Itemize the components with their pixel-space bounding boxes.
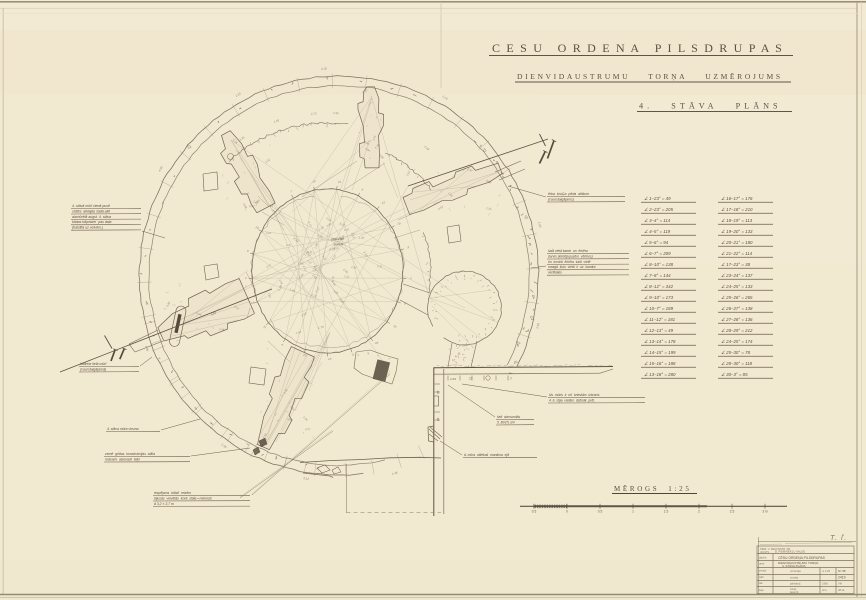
svg-text:∠ 25–30° = 78: ∠ 25–30° = 78: [721, 350, 751, 355]
svg-text:∠ 28–29° = 212: ∠ 28–29° = 212: [721, 328, 753, 333]
svg-text:4. stāva mūra virsma: 4. stāva mūra virsma: [107, 427, 139, 431]
svg-text:redzami atseviskĭ leļķi: redzami atseviskĭ leļķi: [105, 457, 140, 461]
svg-text:∠ 3–4° = 114: ∠ 3–4° = 114: [644, 218, 671, 223]
svg-text:∠ 24–25° = 174: ∠ 24–25° = 174: [721, 339, 753, 344]
svg-text:zemē grīdas konstrukcijas s: zemē grīdas konstrukcijas stāĺa: [104, 451, 155, 456]
svg-text:∠ 26–27° = 138: ∠ 26–27° = 138: [721, 306, 753, 311]
svg-text:raset̆.: raset̆.: [759, 562, 765, 565]
svg-text:2.31: 2.31: [376, 264, 383, 269]
svg-text:∠ 27–28° = 136: ∠ 27–28° = 136: [721, 317, 753, 322]
svg-text:3 m: 3 m: [762, 510, 768, 514]
svg-text:22: 22: [374, 341, 379, 345]
svg-text:2.72: 2.72: [310, 111, 317, 116]
svg-text:m 1:25: m 1:25: [822, 569, 830, 573]
svg-text:38 sk.: 38 sk.: [838, 588, 845, 592]
svg-text:∠ 28–30° = 118: ∠ 28–30° = 118: [721, 361, 753, 366]
svg-text:∠ 12–13° = 49: ∠ 12–13° = 49: [644, 328, 674, 333]
svg-text:T. ľ.: T. ľ.: [830, 533, 847, 542]
svg-text:3.55: 3.55: [344, 227, 350, 232]
svg-text:∠ 4–5° = 119: ∠ 4–5° = 119: [644, 229, 671, 234]
svg-text:∠ 19–20° = 133: ∠ 19–20° = 133: [721, 229, 753, 234]
svg-text:∠ 18–19° = 113: ∠ 18–19° = 113: [721, 218, 753, 223]
svg-text:MĒROGS 1:25: MĒROGS 1:25: [614, 485, 692, 493]
svg-text:iespējams bālstī reizēm: iespējams bālstī reizēm: [154, 491, 191, 495]
svg-text:∠ 21–22° = 114: ∠ 21–22° = 114: [721, 251, 753, 256]
svg-text:3.18: 3.18: [321, 66, 327, 71]
svg-text:.88: .88: [436, 417, 440, 421]
svg-text:VALSTS: VALSTS: [760, 551, 769, 554]
svg-text:torn.: torn.: [822, 588, 827, 592]
svg-text:lapa Nr.: lapa Nr.: [790, 590, 799, 594]
svg-text:pārbāud.: pārbāud.: [790, 581, 801, 585]
svg-text:∠ 17–18° = 210: ∠ 17–18° = 210: [721, 207, 753, 212]
svg-text:C E S U O R D E N A P I L: C E S U O R D E N A P I L S D R U P A S: [492, 41, 783, 55]
svg-text:šis mūris ir nō briestăm: šis mūris ir nō briestăm izbrucis: [549, 393, 600, 397]
svg-text:(caurstaigājams): (caurstaigājams): [548, 197, 574, 201]
svg-text:∠ 30–3° = 85: ∠ 30–3° = 85: [721, 372, 748, 377]
svg-text:ūn kontră ērkēra šaĺā vie: ūn kontră ērkēra šaĺā vietē: [548, 259, 591, 264]
svg-text:(balstīta uz velvēm.): (balstīta uz velvēm.): [72, 226, 103, 230]
svg-text:1.86: 1.86: [298, 261, 304, 266]
svg-text:5. BV(?) /24: 5. BV(?) /24: [497, 420, 515, 424]
svg-text:0.5: 0.5: [532, 510, 537, 514]
svg-text:1.04: 1.04: [450, 377, 456, 381]
svg-text:∠ 13–14° = 178: ∠ 13–14° = 178: [644, 339, 676, 344]
svg-text:DIENVIDAUSTRUMU TORŅA UZ: DIENVIDAUSTRUMU TORŅA UZMĒROJUMS: [517, 72, 783, 82]
svg-text:7: 7: [510, 377, 512, 381]
svg-text:∠ 15–16° = 188: ∠ 15–16° = 188: [644, 361, 676, 366]
svg-text:CĒSU ORDEŅA PILSDRUPAS: CĒSU ORDEŅA PILSDRUPAS: [778, 556, 826, 560]
svg-text:Nr. 58: Nr. 58: [838, 569, 846, 573]
svg-text:aizmūrētă augst. 4. stāva: aizmūrētă augst. 4. stāva: [72, 215, 111, 219]
svg-text:2: 2: [698, 510, 700, 514]
svg-text:4. STĀVA PLĀNS: 4. STĀVA PLĀNS: [639, 102, 782, 111]
svg-text:∠ 24–25° = 133: ∠ 24–25° = 133: [721, 284, 753, 289]
svg-text:2.07: 2.07: [304, 427, 311, 431]
svg-text:∠ 5–6° = 94: ∠ 5–6° = 94: [644, 240, 669, 245]
svg-text:0: 0: [566, 510, 568, 514]
svg-text:∠ 17–23° = 38: ∠ 17–23° = 38: [721, 262, 751, 267]
svg-text:dat.: dat.: [759, 582, 763, 585]
svg-text:ā 3,2 × 3,7 m: ā 3,2 × 3,7 m: [154, 502, 174, 506]
svg-text:4.95: 4.95: [286, 243, 292, 247]
svg-text:ērka bruĢa pēda atlikum: ērka bruĢa pēda atlikum: [548, 192, 589, 196]
svg-text:2: 2: [244, 276, 247, 280]
svg-text:∠ 7–8° = 144: ∠ 7–8° = 144: [644, 273, 671, 278]
svg-text:1.5: 1.5: [664, 510, 669, 514]
svg-text:B. PIEMINĒKĽU VALDE: B. PIEMINĒKĽU VALDE: [775, 550, 805, 554]
svg-text:∠ 16–17° = 176: ∠ 16–17° = 176: [721, 196, 753, 201]
svg-text:.92: .92: [436, 390, 440, 394]
svg-text:pārb.: pārb.: [759, 576, 765, 579]
svg-text:∠ 11–12° = 181: ∠ 11–12° = 181: [644, 317, 676, 322]
svg-text:∠ 10–7° = 189: ∠ 10–7° = 189: [644, 306, 674, 311]
svg-text:∠ 14–15° = 199: ∠ 14–15° = 199: [644, 350, 676, 355]
svg-text:1.56: 1.56: [219, 327, 225, 332]
svg-text:lapa: lapa: [759, 589, 764, 592]
svg-text:šeit aizmurotās: šeit aizmurotās: [497, 415, 520, 419]
svg-text:1936: 1936: [822, 581, 828, 585]
svg-text:∠ 25–26° = 265: ∠ 25–26° = 265: [721, 295, 753, 300]
svg-text:∠ 2–23° = 205: ∠ 2–23° = 205: [644, 207, 674, 212]
svg-text:mazgā kuļu vietā ir uz ka: mazgā kuļu vietā ir uz kandra: [548, 265, 596, 269]
svg-text:1.95: 1.95: [333, 111, 339, 115]
svg-text:vertikāles: vertikāles: [548, 271, 562, 275]
svg-text:4. ā stā̮a vietām dzēnāk p: 4. ā stā̮a vietām dzēnāk prēt.: [549, 398, 595, 402]
svg-text:4. stāvā mūrī vienă pusē: 4. stāvā mūrī vienă pusē: [72, 204, 110, 208]
svg-text:objekts: objekts: [759, 557, 767, 560]
svg-text:zimēja: zimēja: [759, 570, 767, 573]
svg-text:zimēja: zimēja: [790, 575, 799, 579]
svg-text:bijusăs velvētās koră stā: bijusăs velvētās koră stāĺa • rekonstr…: [154, 495, 213, 500]
svg-text:kādas kāpnistelpas daļa: kādas kāpnistelpas daļa: [72, 220, 112, 224]
svg-text:1.86: 1.86: [359, 236, 365, 240]
svg-text:1: 1: [632, 510, 634, 514]
svg-text:∠ 6–7° = 209: ∠ 6–7° = 209: [644, 251, 671, 256]
svg-text:∠ 23–24° = 137: ∠ 23–24° = 137: [721, 273, 753, 278]
svg-text:∠ 8–10° = 138: ∠ 8–10° = 138: [644, 262, 674, 267]
svg-text:durvis (iekšējupusēm vērtnes): durvis (iekšējupusēm vērtnes): [548, 254, 593, 258]
svg-text:4. STĀVA PLĀNS: 4. STĀVA PLĀNS: [782, 564, 805, 568]
svg-text:3.12: 3.12: [266, 231, 272, 235]
svg-text:uzmērīja: uzmērīja: [790, 569, 801, 573]
svg-text:2419: 2419: [838, 576, 846, 580]
svg-text:(caurstaigājamā): (caurstaigājamā): [80, 367, 106, 371]
svg-text:kādreiz lielă mūrī: kādreiz lielă mūrī: [80, 362, 107, 366]
svg-text:∠ 20–21° = 180: ∠ 20–21° = 180: [721, 240, 753, 245]
svg-text:stūtēs: atklājās šādā ailē: stūtēs: atklājās šādā ailē: [72, 209, 110, 213]
svg-text:VIII: VIII: [838, 582, 842, 586]
svg-text:∠ 8–12° = 342: ∠ 8–12° = 342: [644, 284, 674, 289]
svg-text:13: 13: [328, 357, 332, 361]
svg-text:šaĺā vietā kandr un ērkēra: šaĺā vietā kandr un ērkēra: [548, 248, 588, 253]
svg-text:21: 21: [337, 180, 342, 184]
svg-text:0.5: 0.5: [598, 510, 603, 514]
svg-text:ā. mūra atliekas̆ manāma ej: ā. mūra atliekas̆ manāma ejă: [464, 453, 509, 457]
svg-text:∠ 1–23° = 49: ∠ 1–23° = 49: [644, 196, 671, 201]
svg-text:.72: .72: [468, 377, 473, 381]
svg-text:∠ 9–10° = 173: ∠ 9–10° = 173: [644, 295, 674, 300]
svg-text:2.07: 2.07: [248, 204, 255, 208]
svg-text:2.5: 2.5: [730, 510, 735, 514]
svg-text:∠ 13–18° = 280: ∠ 13–18° = 280: [644, 372, 676, 377]
